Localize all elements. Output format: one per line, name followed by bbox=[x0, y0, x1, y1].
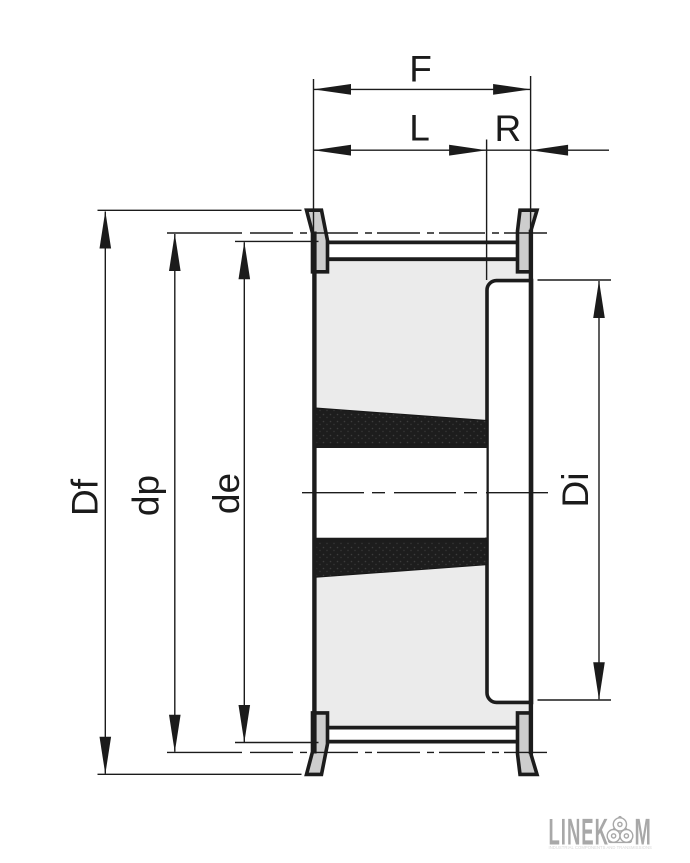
svg-text:Df: Df bbox=[65, 478, 106, 516]
svg-text:de: de bbox=[206, 473, 247, 514]
svg-text:INDUSTRIAL COMPONENTS AND TRAN: INDUSTRIAL COMPONENTS AND TRANSMISSIONS bbox=[549, 845, 653, 850]
svg-text:L: L bbox=[409, 108, 430, 149]
svg-text:dp: dp bbox=[126, 475, 167, 516]
svg-text:F: F bbox=[409, 49, 432, 90]
svg-text:R: R bbox=[495, 108, 522, 149]
svg-text:Di: Di bbox=[555, 473, 596, 508]
